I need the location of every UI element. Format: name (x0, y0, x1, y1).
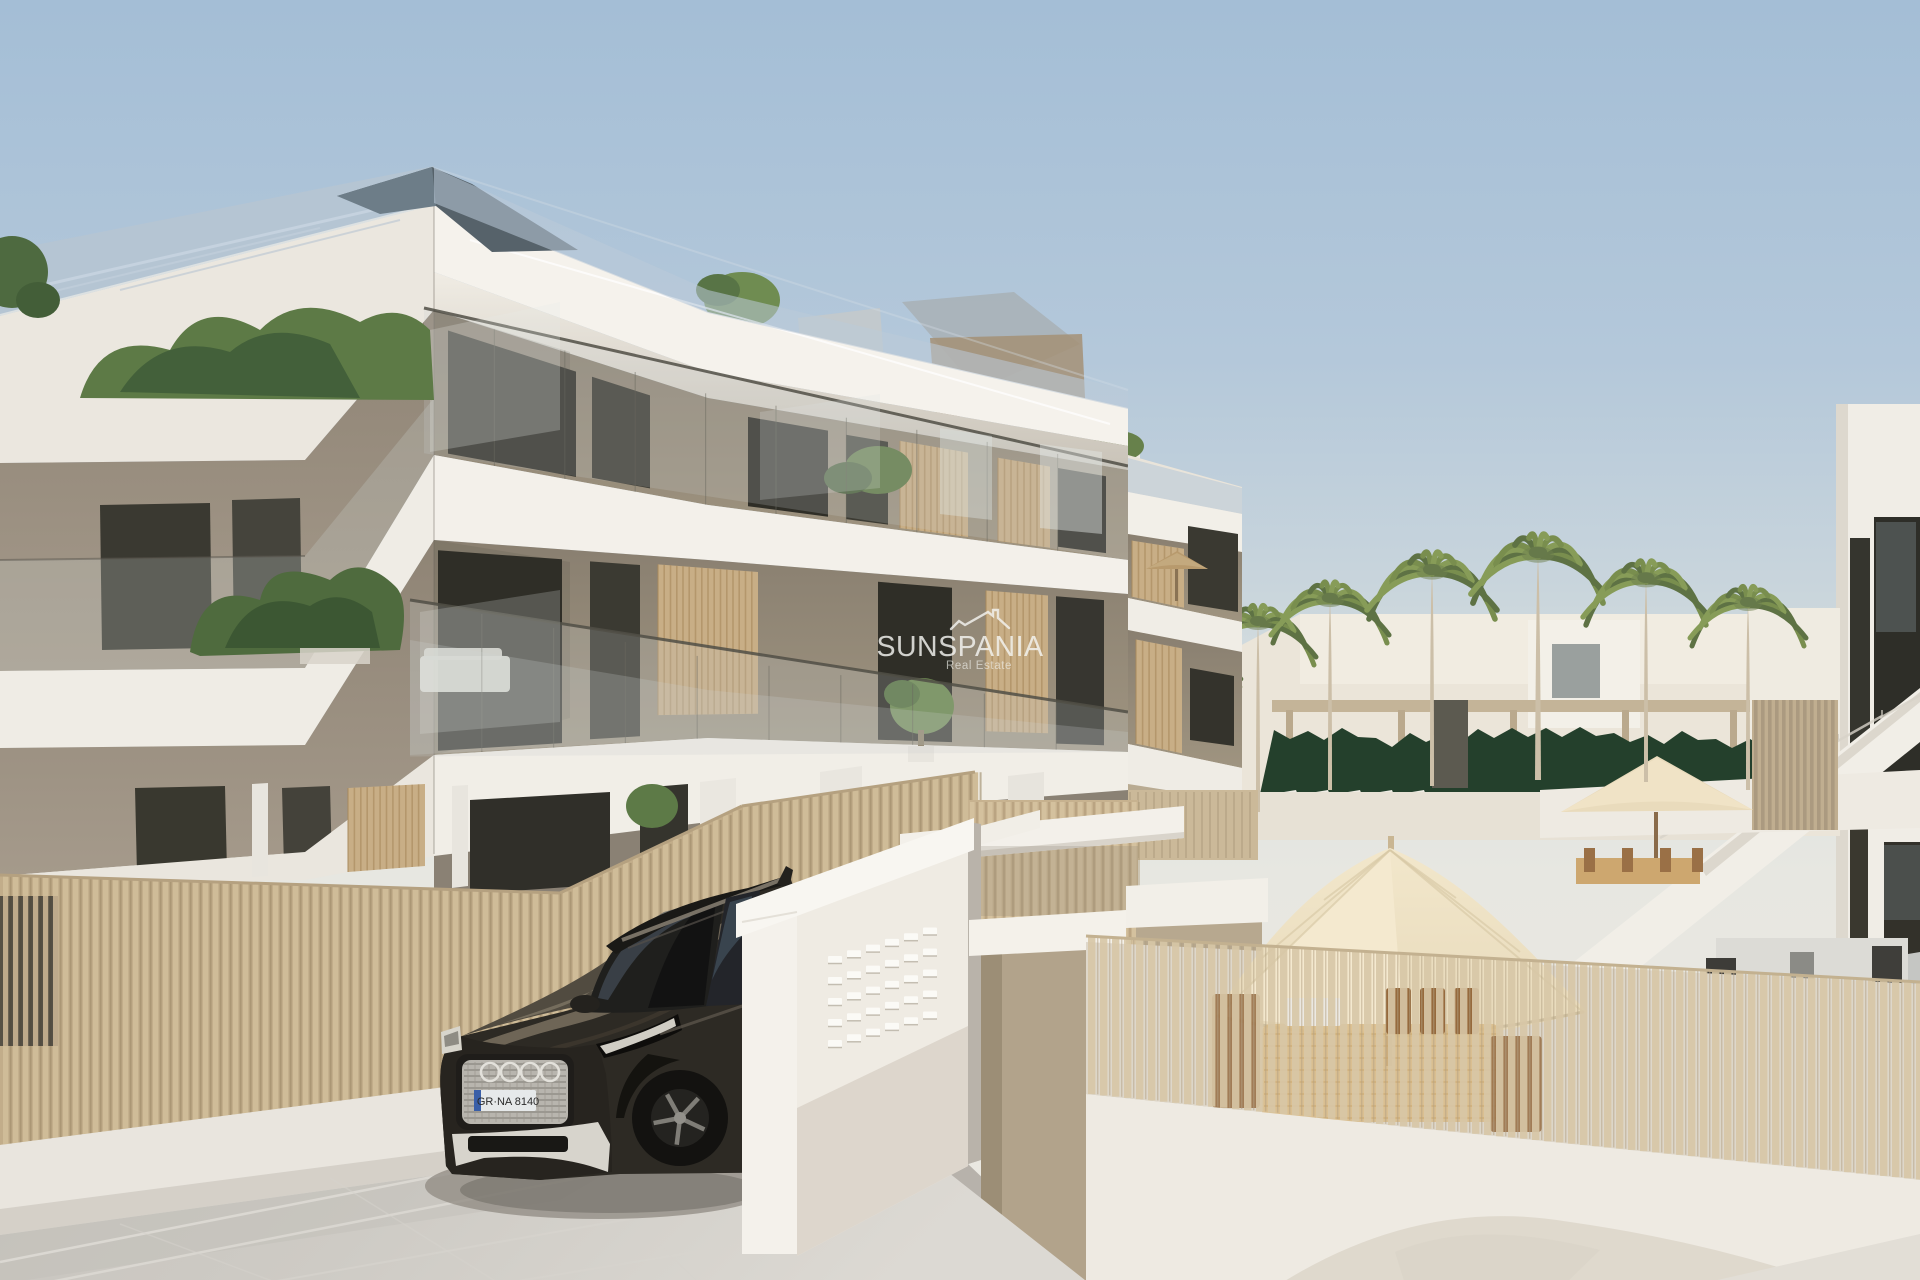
svg-text:Real Estate: Real Estate (946, 660, 1012, 672)
svg-text:SUNSPANIA: SUNSPANIA (876, 631, 1043, 663)
svg-text:GR·NA 8140: GR·NA 8140 (477, 1096, 539, 1108)
